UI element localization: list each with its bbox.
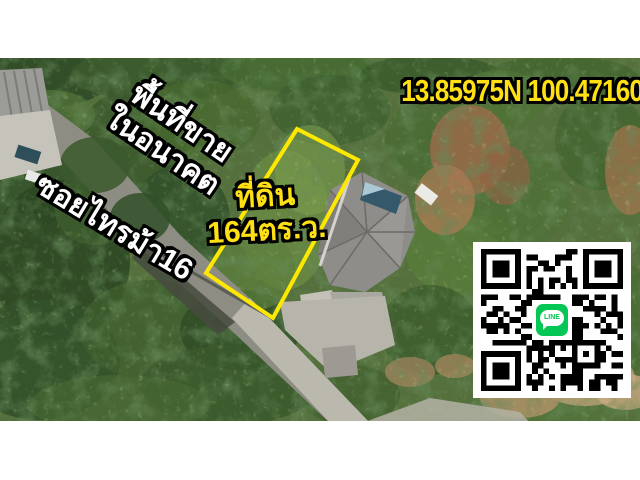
line-logo-icon: LINE (533, 301, 571, 339)
bottom-letterbox-bar (0, 421, 640, 480)
gps-coordinates-text: 13.85975N 100.47160E (401, 74, 640, 109)
plot-area-label: ที่ดิน 164ตร.ว. (184, 176, 347, 251)
gps-coordinates-label: 13.85975N 100.47160E (352, 74, 634, 109)
real-estate-listing-image: 13.85975N 100.47160E พื้นที่ขาย ในอนาคต … (0, 0, 640, 480)
line-qr-code: LINE (473, 242, 631, 398)
top-letterbox-bar (0, 0, 640, 58)
line-logo-text: LINE (540, 310, 564, 326)
line-speech-bubble-icon: LINE (540, 310, 564, 326)
pad-shadow (322, 345, 358, 378)
